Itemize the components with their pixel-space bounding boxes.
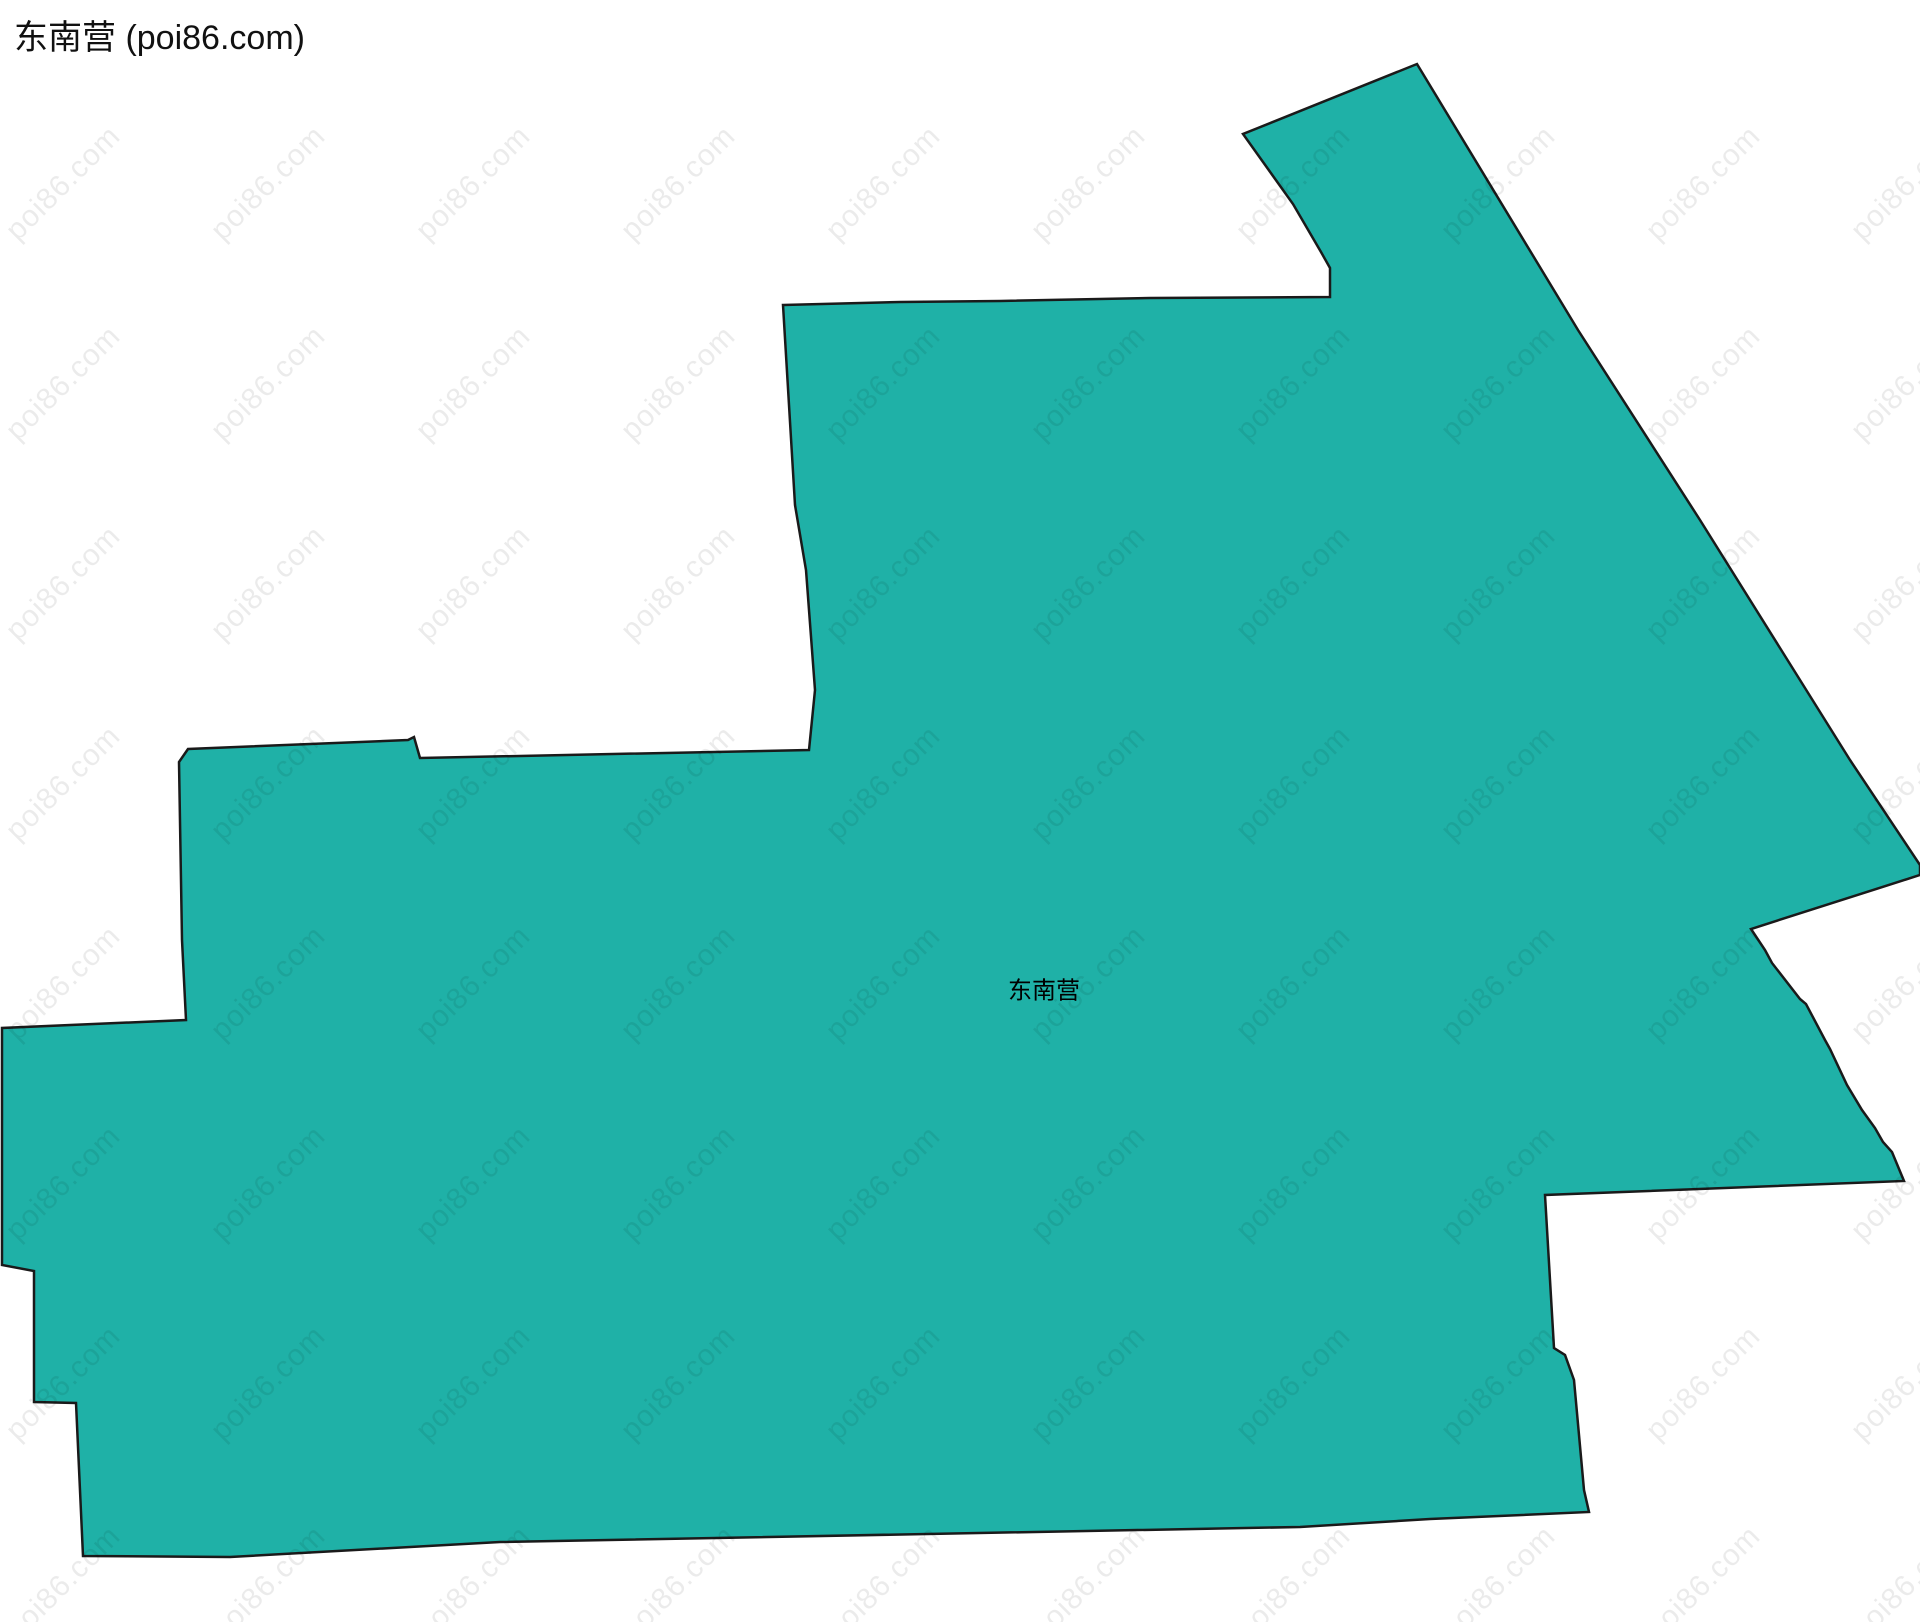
region-label: 东南营 xyxy=(1008,971,1080,1006)
region-polygon xyxy=(2,64,1920,1557)
region-map xyxy=(0,0,1920,1622)
map-canvas: poi86.compoi86.compoi86.compoi86.compoi8… xyxy=(0,0,1920,1622)
page-title: 东南营 (poi86.com) xyxy=(14,10,305,59)
